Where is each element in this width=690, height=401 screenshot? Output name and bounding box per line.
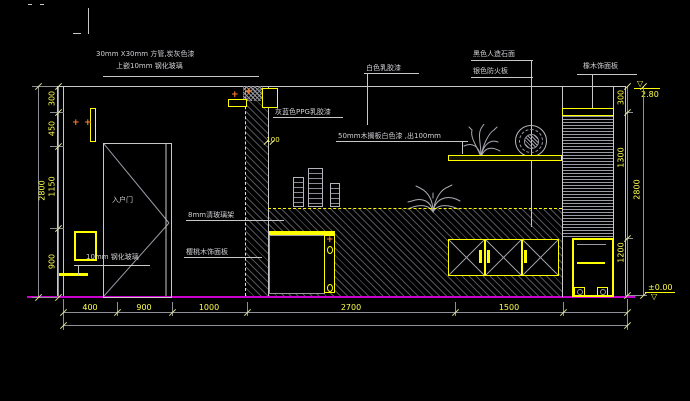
dim-right-1200: 1200 — [617, 233, 626, 273]
dim-chain-line — [58, 86, 59, 297]
left-wall-inner — [63, 86, 64, 297]
dim-extension — [247, 302, 248, 316]
wood-shelf-label: 50mm木搁板白色漆 ,出100mm — [338, 132, 441, 140]
leader-line — [184, 257, 262, 258]
dim-left-900: 900 — [48, 242, 57, 282]
cabinet-foot — [574, 287, 585, 296]
leader-line — [592, 75, 593, 108]
dim-bottom-1000: 1000 — [189, 303, 229, 312]
leader-line — [78, 266, 79, 275]
level-line — [645, 292, 675, 293]
dim-extension — [172, 302, 173, 316]
ppg-paint-label: 灰蓝色PPG乳胶漆 — [275, 108, 331, 116]
right-cabinet-top-line — [577, 244, 606, 245]
dim-extension — [563, 302, 564, 316]
cross-marker: + — [72, 119, 80, 128]
cherry-panel-label: 樱桃木饰面板 — [186, 248, 228, 256]
artifact-dash — [73, 33, 81, 34]
dim-left-total: 2800 — [38, 171, 47, 211]
book-rack — [308, 168, 323, 207]
foot-wheel — [577, 289, 583, 295]
dim-chain-line — [63, 312, 627, 313]
dim-bottom-400: 400 — [70, 303, 110, 312]
leader-line — [471, 77, 533, 78]
leader-line — [74, 265, 150, 266]
leader-line — [336, 141, 468, 142]
glass-shelf-label: 8mm清玻璃架 — [188, 211, 234, 219]
floating-shelf — [448, 155, 562, 161]
dim-extension — [117, 302, 118, 316]
plate-center-hatch — [524, 134, 539, 149]
cabinet-door — [485, 239, 522, 276]
leader-line — [103, 76, 259, 77]
door-handle — [487, 250, 490, 263]
cabinet-door — [522, 239, 559, 276]
tempered-glass-label: 10mm 钢化玻璃 — [86, 253, 139, 261]
square-tube-label-2: 上嵌10mm 钢化玻璃 — [116, 62, 183, 70]
leader-line — [273, 117, 343, 118]
leader-line — [577, 74, 637, 75]
dim-right-1300: 1300 — [617, 138, 626, 178]
dim-left-1150: 1150 — [48, 167, 57, 207]
level-bottom-value: ±0.00 — [648, 283, 673, 292]
cross-marker: + — [245, 88, 253, 97]
elevation-drawing: + + + + 入户门 10mm 钢化玻璃 30mm X30mm 方管,炭灰色漆… — [0, 0, 690, 401]
cross-marker: + — [231, 91, 239, 100]
white-paint-label: 白色乳胶漆 — [366, 64, 401, 72]
column-left-dashed-line — [245, 86, 246, 296]
dim-bottom-1500: 1500 — [489, 303, 529, 312]
entry-door-label: 入户门 — [112, 196, 133, 204]
square-tube-label-1: 30mm X30mm 方管,炭灰色漆 — [96, 50, 195, 58]
level-triangle-icon: ▽ — [651, 293, 657, 301]
door-swing-lines — [104, 144, 171, 297]
dim-right-300: 300 — [617, 78, 626, 118]
cabinet-foot — [597, 287, 608, 296]
dim-chain-line — [627, 86, 628, 295]
dim-right-total: 2800 — [633, 170, 642, 210]
ceiling-detail-box — [262, 88, 278, 108]
louver-panel — [563, 116, 613, 237]
base-cabinet-body — [269, 235, 325, 294]
leader-line — [364, 73, 419, 74]
artifact-line — [88, 8, 89, 34]
dim-total-line — [63, 325, 627, 326]
cross-marker: + — [326, 236, 334, 245]
black-stone-label: 黑色人造石面 — [473, 50, 515, 58]
dim-total-line — [643, 86, 644, 295]
silver-board-label: 银色防火板 — [473, 67, 508, 75]
level-line — [634, 88, 660, 89]
leader-line — [471, 60, 533, 61]
column-hatch — [246, 88, 268, 296]
book-rack — [330, 183, 340, 207]
dim-bottom-2700: 2700 — [331, 303, 371, 312]
cross-marker: + — [84, 119, 92, 128]
entry-door — [103, 143, 172, 298]
stile-knob — [327, 284, 333, 292]
oak-panel-label: 橡木饰面板 — [583, 62, 618, 70]
stile-knob — [327, 246, 333, 254]
decorative-plate — [515, 125, 547, 157]
dim-bottom-900: 900 — [124, 303, 164, 312]
door-handle — [479, 250, 482, 263]
base-board — [58, 273, 88, 276]
foot-wheel — [600, 289, 606, 295]
plant-on-shelf — [460, 124, 502, 158]
artifact-dash — [40, 4, 44, 5]
panel-top-band — [562, 108, 614, 116]
artifact-dash — [28, 4, 32, 5]
right-cabinet-shelf — [577, 262, 605, 264]
ceiling-line — [57, 86, 625, 87]
dim-left-450: 450 — [48, 109, 57, 149]
ceiling-bracket — [228, 99, 247, 107]
dim-extension — [455, 302, 456, 316]
book-rack — [293, 177, 304, 207]
door-handle — [524, 250, 527, 263]
leader-line — [367, 74, 368, 125]
